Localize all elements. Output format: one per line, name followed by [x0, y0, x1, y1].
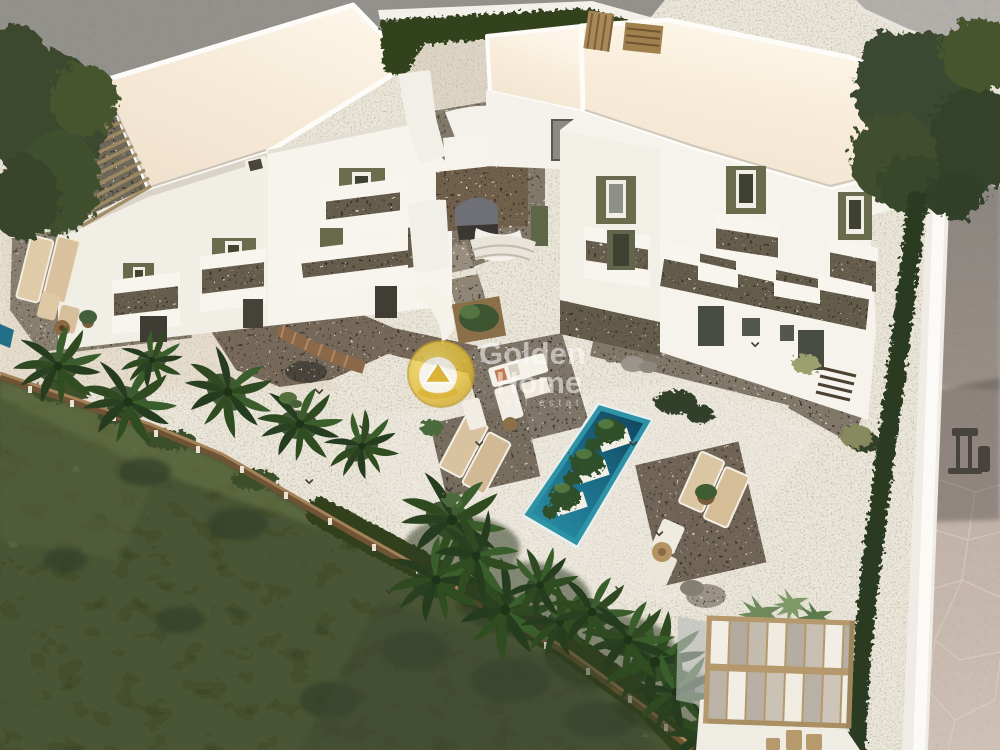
svg-text:real estate: real estate: [497, 398, 593, 409]
svg-text:Home: Home: [496, 365, 582, 400]
